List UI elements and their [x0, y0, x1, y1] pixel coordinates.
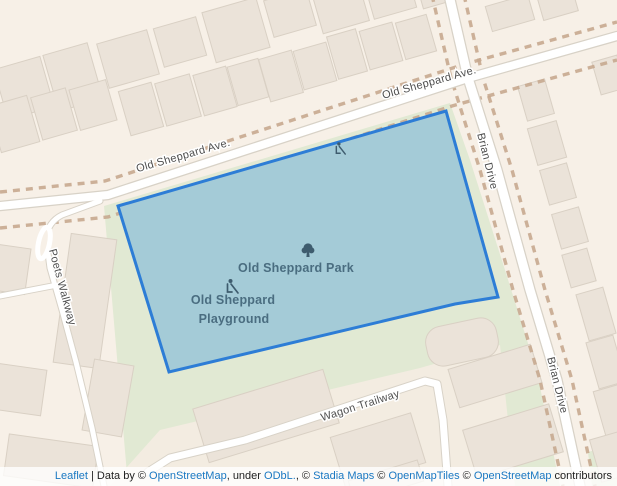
- attribution-bar: Leaflet | Data by © OpenStreetMap, under…: [0, 467, 617, 486]
- attribution-text: contributors: [551, 470, 612, 482]
- map-container[interactable]: Old Sheppard Ave. Old Sheppard Ave. Bria…: [0, 0, 617, 486]
- odbl-link[interactable]: ODbL.: [264, 470, 296, 482]
- attribution-text: , under: [227, 470, 264, 482]
- attribution-text: , ©: [296, 470, 313, 482]
- playground-label-line1: Old Sheppard: [191, 293, 275, 307]
- leaflet-link[interactable]: Leaflet: [55, 470, 88, 482]
- openmaptiles-link[interactable]: OpenMapTiles: [388, 470, 459, 482]
- playground-label-line2: Playground: [199, 312, 270, 326]
- attribution-text: | Data by ©: [88, 470, 149, 482]
- stadia-maps-link[interactable]: Stadia Maps: [313, 470, 374, 482]
- park-name-label: Old Sheppard Park: [238, 261, 354, 275]
- map-canvas[interactable]: Old Sheppard Ave. Old Sheppard Ave. Bria…: [0, 0, 617, 486]
- openstreetmap-link[interactable]: OpenStreetMap: [149, 470, 227, 482]
- openstreetmap-link[interactable]: OpenStreetMap: [474, 470, 552, 482]
- attribution-text: ©: [374, 470, 388, 482]
- attribution-text: ©: [460, 470, 474, 482]
